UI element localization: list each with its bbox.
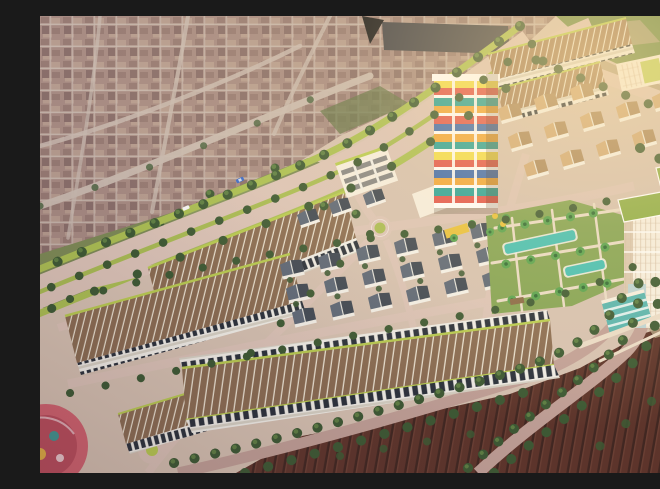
masterplan-figure: Aerial 3D architectural rendering of a r… xyxy=(40,16,660,473)
corner-shade xyxy=(40,16,660,473)
aerial-render: Aerial 3D architectural rendering of a r… xyxy=(40,16,660,473)
